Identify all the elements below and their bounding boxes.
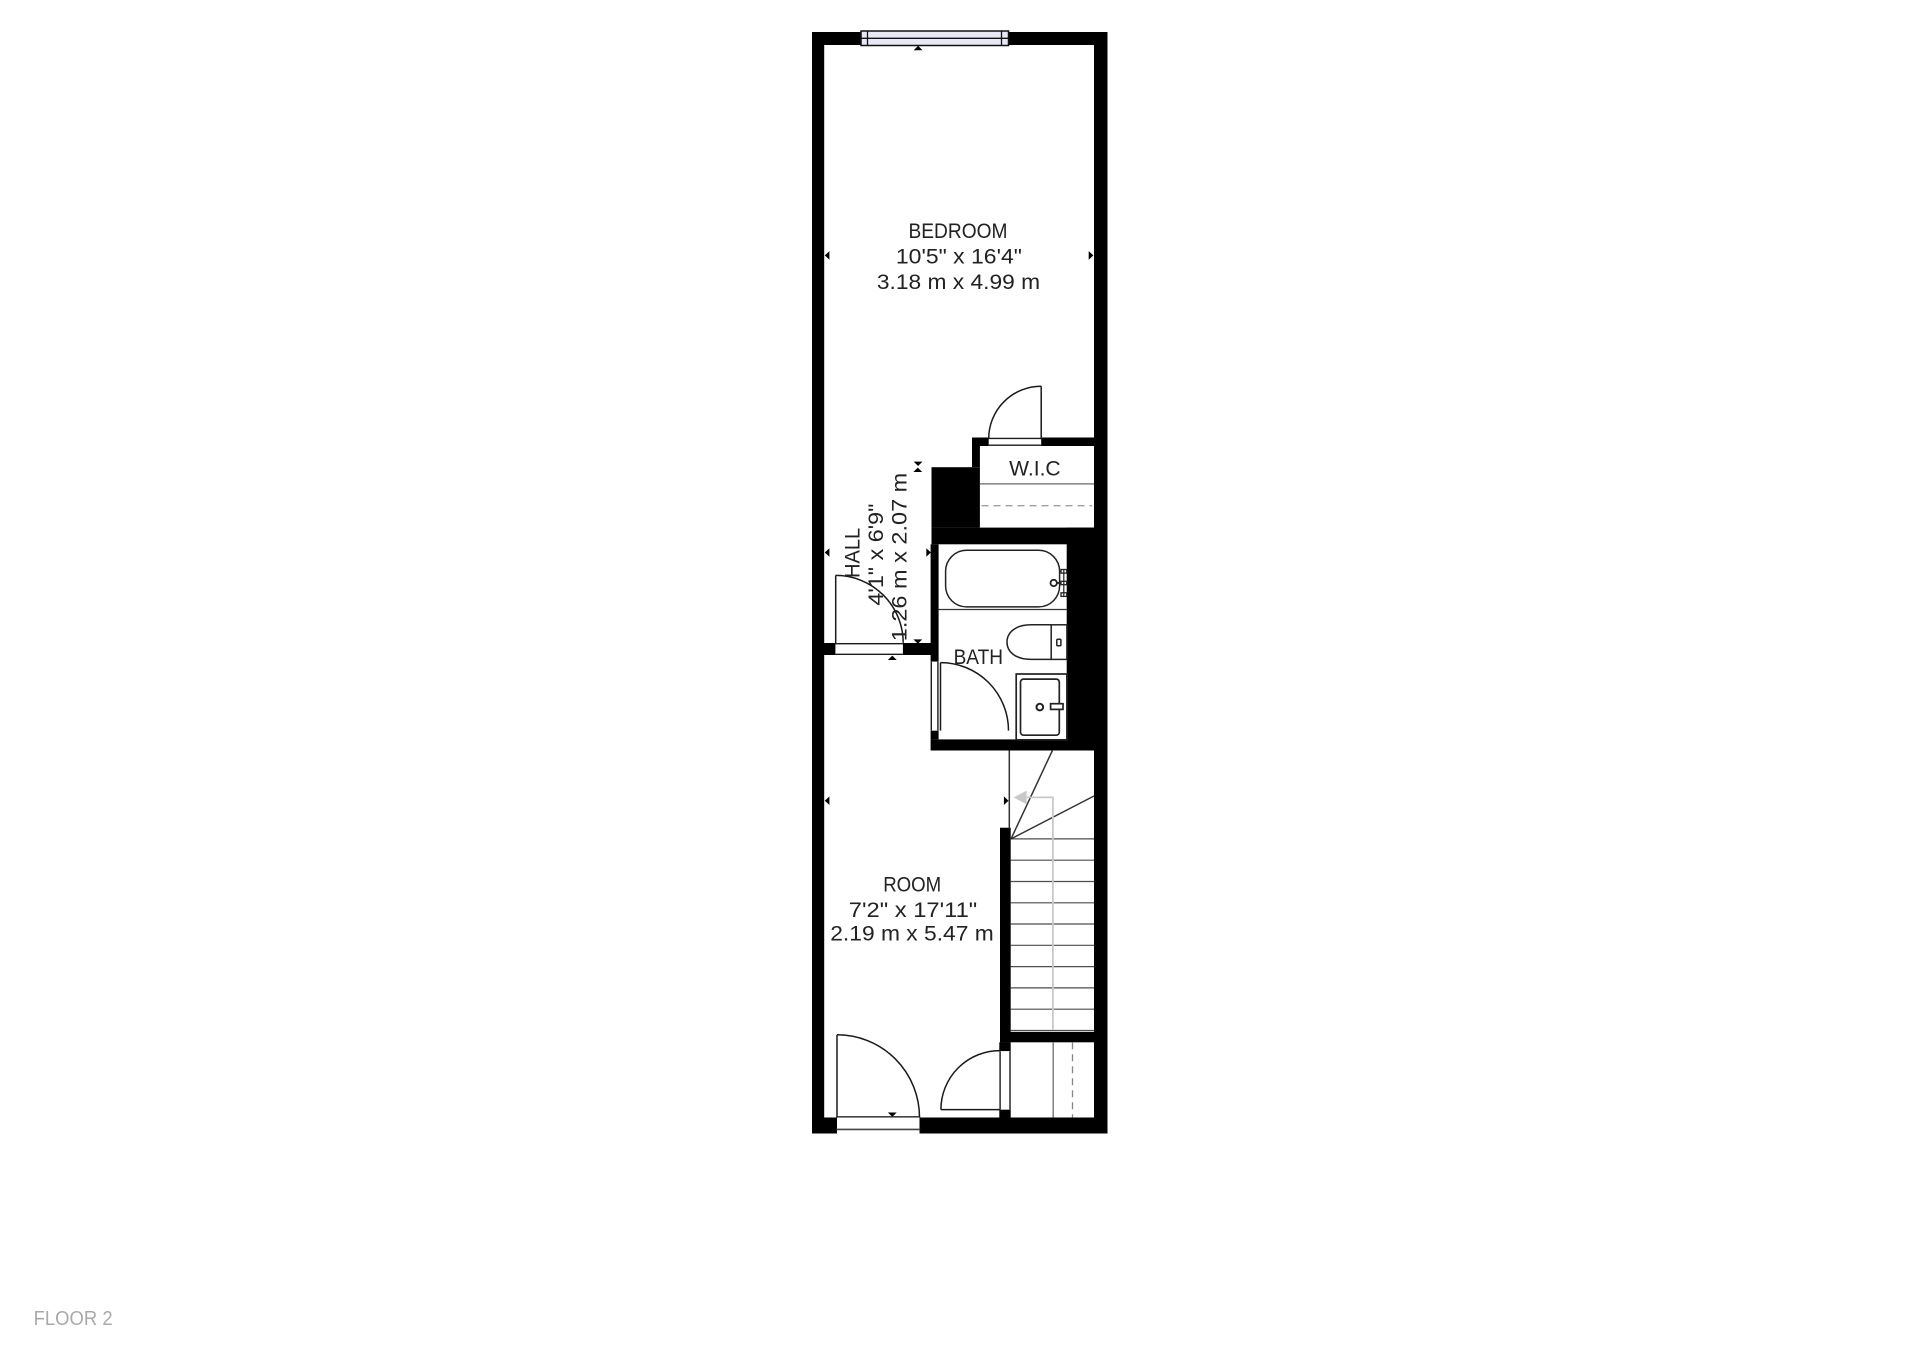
svg-text:4'1" x 6'9": 4'1" x 6'9" [864,504,888,606]
svg-text:3.18 m x 4.99 m: 3.18 m x 4.99 m [877,270,1040,294]
svg-text:10'5" x 16'4": 10'5" x 16'4" [896,244,1022,268]
svg-text:HALL: HALL [841,528,865,578]
svg-text:ROOM: ROOM [883,873,941,897]
svg-text:W.I.C: W.I.C [1009,456,1061,480]
svg-text:1.26 m x 2.07 m: 1.26 m x 2.07 m [888,473,912,642]
svg-text:BEDROOM: BEDROOM [909,219,1008,243]
svg-text:2.19 m x 5.47 m: 2.19 m x 5.47 m [830,922,994,946]
svg-text:7'2" x 17'11": 7'2" x 17'11" [849,898,978,922]
svg-text:BATH: BATH [954,645,1003,669]
svg-text:FLOOR 2: FLOOR 2 [34,1307,113,1330]
